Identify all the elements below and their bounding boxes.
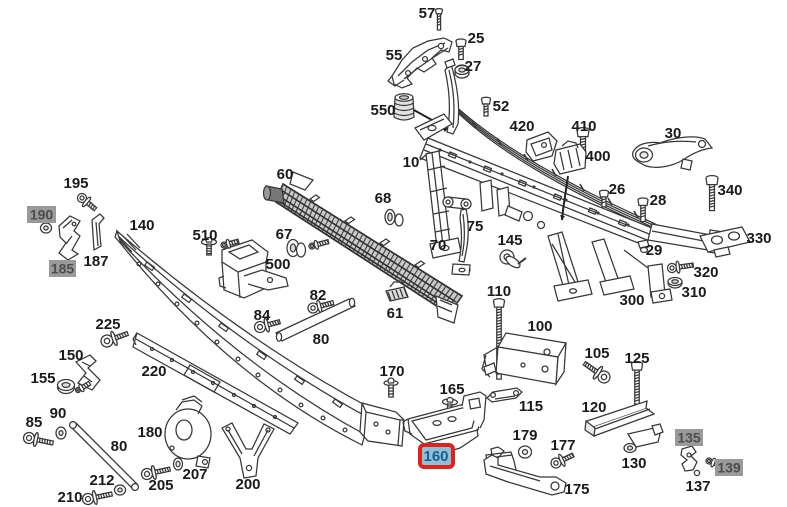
svg-text:190: 190	[30, 207, 54, 223]
svg-text:210: 210	[57, 489, 82, 506]
svg-text:10: 10	[403, 154, 420, 171]
svg-text:205: 205	[148, 477, 173, 494]
svg-text:57: 57	[419, 5, 436, 22]
svg-text:220: 220	[141, 363, 166, 380]
svg-text:139: 139	[717, 460, 741, 476]
svg-text:187: 187	[83, 253, 108, 270]
svg-text:55: 55	[386, 47, 403, 64]
svg-text:68: 68	[375, 190, 392, 207]
svg-text:200: 200	[235, 476, 260, 493]
svg-text:80: 80	[111, 438, 128, 455]
svg-text:28: 28	[650, 192, 667, 209]
svg-text:70: 70	[430, 237, 447, 254]
svg-text:75: 75	[467, 218, 484, 235]
svg-text:60: 60	[277, 166, 294, 183]
svg-text:100: 100	[527, 318, 552, 335]
svg-text:130: 130	[621, 455, 646, 472]
svg-text:300: 300	[619, 292, 644, 309]
svg-text:30: 30	[665, 125, 682, 142]
svg-text:340: 340	[717, 182, 742, 199]
svg-text:510: 510	[192, 227, 217, 244]
svg-text:115: 115	[519, 398, 543, 415]
svg-text:105: 105	[584, 345, 609, 362]
svg-text:29: 29	[646, 242, 663, 259]
svg-text:110: 110	[487, 283, 511, 300]
svg-text:550: 550	[370, 102, 395, 119]
svg-text:67: 67	[276, 226, 293, 243]
svg-text:82: 82	[310, 287, 327, 304]
svg-text:165: 165	[439, 381, 464, 398]
svg-text:177: 177	[550, 437, 575, 454]
svg-text:52: 52	[493, 98, 510, 115]
svg-text:80: 80	[313, 331, 330, 348]
svg-text:420: 420	[509, 118, 534, 135]
svg-text:27: 27	[465, 58, 482, 75]
svg-text:310: 310	[681, 284, 706, 301]
svg-text:207: 207	[182, 466, 207, 483]
svg-text:155: 155	[30, 370, 55, 387]
svg-text:320: 320	[693, 264, 718, 281]
svg-text:140: 140	[129, 217, 154, 234]
svg-text:150: 150	[58, 347, 83, 364]
svg-text:175: 175	[564, 481, 589, 498]
svg-text:125: 125	[624, 350, 649, 367]
svg-text:84: 84	[254, 307, 271, 324]
svg-text:185: 185	[51, 261, 75, 277]
svg-text:212: 212	[89, 472, 114, 489]
svg-text:180: 180	[137, 424, 162, 441]
svg-text:120: 120	[581, 399, 606, 416]
svg-text:170: 170	[379, 363, 404, 380]
svg-text:90: 90	[50, 405, 67, 422]
svg-text:500: 500	[265, 256, 290, 273]
svg-text:400: 400	[585, 148, 610, 165]
svg-text:410: 410	[571, 118, 596, 135]
svg-text:61: 61	[387, 305, 404, 322]
svg-text:330: 330	[746, 230, 771, 247]
svg-text:25: 25	[468, 30, 485, 47]
svg-text:145: 145	[497, 232, 522, 249]
svg-text:85: 85	[26, 414, 43, 431]
svg-text:160: 160	[423, 448, 448, 465]
svg-text:137: 137	[685, 478, 710, 495]
svg-text:195: 195	[63, 175, 88, 192]
svg-text:26: 26	[609, 181, 626, 198]
svg-text:179: 179	[512, 427, 537, 444]
svg-text:225: 225	[95, 316, 120, 333]
svg-text:135: 135	[677, 430, 701, 446]
